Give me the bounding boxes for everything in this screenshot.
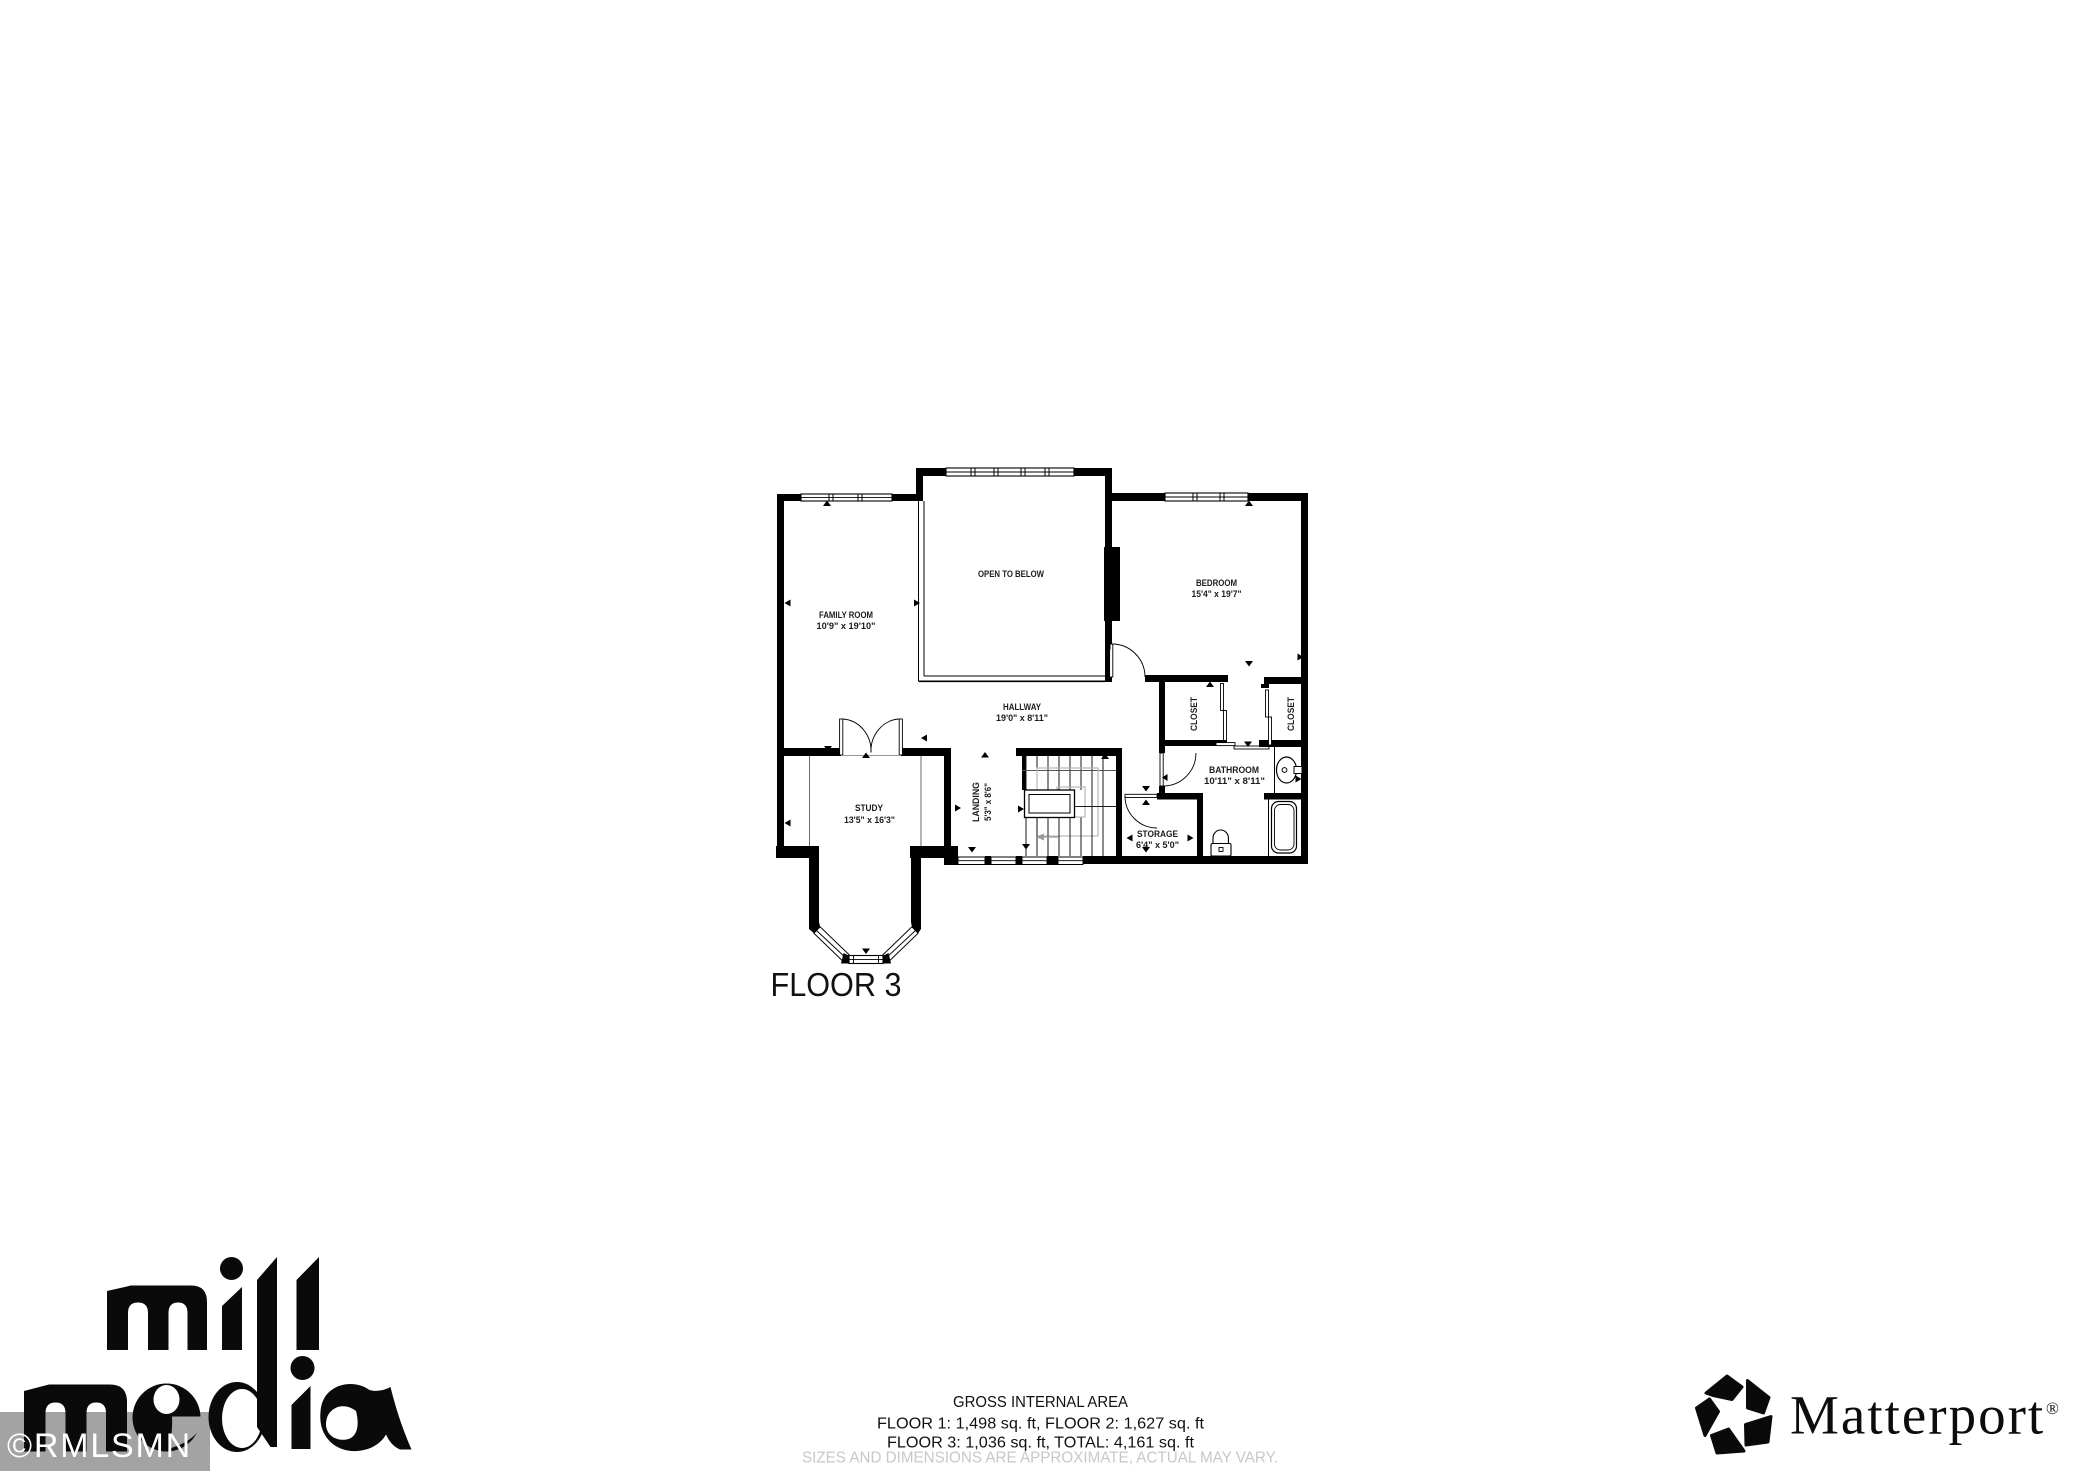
svg-text:STUDY: STUDY	[855, 803, 883, 813]
svg-text:BEDROOM: BEDROOM	[1196, 578, 1237, 588]
svg-text:BATHROOM: BATHROOM	[1209, 765, 1259, 775]
svg-text:10'9" x 19'10": 10'9" x 19'10"	[817, 621, 876, 631]
svg-text:©RMLSMN: ©RMLSMN	[7, 1427, 192, 1465]
svg-text:STORAGE: STORAGE	[1137, 829, 1178, 839]
svg-text:FLOOR 1: 1,498 sq. ft, FLOOR 2: FLOOR 1: 1,498 sq. ft, FLOOR 2: 1,627 sq…	[877, 1416, 1205, 1433]
svg-text:13'5" x 16'3": 13'5" x 16'3"	[844, 815, 895, 825]
svg-text:SIZES AND DIMENSIONS ARE APPRO: SIZES AND DIMENSIONS ARE APPROXIMATE, AC…	[802, 1450, 1278, 1467]
svg-text:®: ®	[2046, 1399, 2059, 1418]
svg-text:Matterport: Matterport	[1790, 1385, 2045, 1446]
svg-text:19'0" x 8'11": 19'0" x 8'11"	[996, 713, 1048, 723]
svg-text:FLOOR 3: FLOOR 3	[771, 966, 902, 1003]
svg-text:5'3" x 8'6": 5'3" x 8'6"	[983, 783, 993, 821]
svg-text:15'4" x 19'7": 15'4" x 19'7"	[1192, 589, 1242, 599]
svg-text:GROSS INTERNAL AREA: GROSS INTERNAL AREA	[953, 1394, 1128, 1411]
svg-text:6'4" x 5'0": 6'4" x 5'0"	[1136, 840, 1179, 850]
svg-text:CLOSET: CLOSET	[1286, 697, 1296, 731]
svg-text:FAMILY ROOM: FAMILY ROOM	[819, 610, 873, 620]
svg-text:LANDING: LANDING	[971, 782, 981, 822]
svg-text:OPEN TO BELOW: OPEN TO BELOW	[978, 569, 1044, 579]
svg-text:HALLWAY: HALLWAY	[1003, 702, 1041, 712]
svg-text:CLOSET: CLOSET	[1189, 697, 1199, 731]
svg-text:10'11" x 8'11": 10'11" x 8'11"	[1204, 776, 1265, 786]
